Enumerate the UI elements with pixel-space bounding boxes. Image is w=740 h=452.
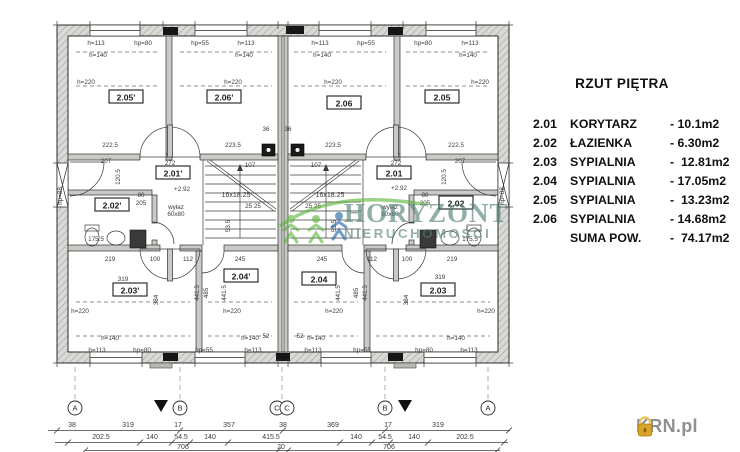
axis-label: B — [177, 404, 182, 413]
dim-label: 222.5 — [102, 142, 118, 149]
section-marker-left — [154, 400, 168, 412]
dim-label: 175.5 — [88, 236, 104, 243]
dim-label: hp=88 — [57, 187, 64, 205]
dim-label: 222.5 — [448, 142, 464, 149]
dim-label: 60x80 — [167, 211, 185, 218]
dim-label: 485 — [353, 287, 360, 298]
dim-label: 36 — [262, 126, 270, 133]
dim-label: h=220 — [324, 79, 342, 86]
dim-label: 112 — [367, 256, 378, 263]
dim-label: h=140 — [235, 52, 253, 59]
dim-label: h=113 — [237, 40, 255, 47]
dim-label: 140 — [204, 434, 216, 441]
dim-label: 485 — [203, 287, 210, 298]
agency-name-line2: NIERUCHOMOŚCI — [344, 226, 509, 241]
dim-label: 36 — [284, 126, 292, 133]
dim-label: +2.92 — [174, 186, 190, 193]
dim-label: +2.92 — [391, 185, 407, 192]
dim-label: 219 — [105, 256, 116, 263]
dim-label: 272 — [391, 160, 402, 167]
dim-label: hp=80 — [133, 347, 151, 354]
legend-row: 2.01 KORYTARZ - 10.1m2 — [533, 115, 729, 134]
dim-label: 16x18.25 — [222, 192, 251, 199]
dim-label: hp=80 — [415, 347, 433, 354]
dim-label: 384 — [153, 294, 160, 305]
dim-label: 54.5 — [174, 434, 188, 441]
legend: RZUT PIĘTRA 2.01 KORYTARZ - 10.1m2 2.02 … — [533, 76, 729, 248]
dim-label: 245 — [317, 256, 328, 263]
section-marker-right — [398, 400, 412, 412]
dim-label: 17 — [174, 422, 182, 429]
house-icon — [636, 416, 654, 437]
dim-label: 140 — [350, 434, 362, 441]
dim-label: h=220 — [325, 308, 343, 315]
dim-label: h=220 — [477, 308, 495, 315]
dim-label: 384 — [403, 294, 410, 305]
room-code: 2.01 — [533, 115, 570, 134]
dim-label: 112 — [183, 256, 194, 263]
dim-label: h=113 — [304, 347, 322, 354]
dim-label: 357 — [223, 422, 235, 429]
dim-label: 107 — [311, 162, 322, 169]
dim-label: 207 — [455, 158, 466, 165]
dim-label: h=220 — [71, 308, 89, 315]
dim-label: 52 — [296, 333, 304, 340]
dim-label: h=140 — [101, 335, 119, 342]
room-area: - 17.05m2 — [670, 172, 729, 191]
dim-label: h=140 — [307, 335, 325, 342]
dim-label: 205 — [136, 200, 147, 207]
room-name: SYPIALNIA — [570, 191, 670, 210]
room-name: SYPIALNIA — [570, 153, 670, 172]
dim-label: 441.5 — [221, 285, 228, 301]
dim-label: h=220 — [471, 79, 489, 86]
dim-label: 441.5 — [335, 285, 342, 301]
dim-label: 107 — [245, 162, 256, 169]
dim-label: 369 — [327, 422, 339, 429]
dim-label: 223.5 — [225, 142, 241, 149]
room-name: SYPIALNIA — [570, 172, 670, 191]
room-label: 2.06' — [215, 93, 234, 103]
room-name: SYPIALNIA — [570, 210, 670, 229]
dim-label: 319 — [432, 422, 444, 429]
agency-watermark: HORYZONT NIERUCHOMOŚCI — [278, 192, 548, 250]
dim-label: 54.5 — [378, 434, 392, 441]
dim-label: 140 — [146, 434, 158, 441]
dim-label: 223.5 — [325, 142, 341, 149]
room-code: 2.04 — [533, 172, 570, 191]
dim-label: hp=55 — [357, 40, 375, 47]
dim-label: 245 — [235, 256, 246, 263]
dim-label: wyłaz — [167, 204, 184, 211]
room-area: - 10.1m2 — [670, 115, 729, 134]
dim-label: h=113 — [244, 347, 262, 354]
dim-label: h=220 — [224, 79, 242, 86]
dim-label: 120.5 — [441, 169, 448, 185]
dim-label: 207 — [101, 158, 112, 165]
staircase-left — [205, 160, 276, 238]
room-name: KORYTARZ — [570, 115, 670, 134]
vent-shafts — [262, 144, 304, 156]
dim-label: 415.5 — [262, 434, 280, 441]
room-area: - 12.81m2 — [670, 153, 730, 172]
dim-label: 100 — [402, 256, 413, 263]
dim-label: 202.5 — [456, 434, 474, 441]
total-label: SUMA POW. — [570, 229, 670, 248]
legend-row: 2.05 SYPIALNIA - 13.23m2 — [533, 191, 729, 210]
dim-label: h=140 — [313, 52, 331, 59]
dim-label: h=220 — [223, 308, 241, 315]
dim-label: 319 — [118, 276, 129, 283]
legend-row: 2.04 SYPIALNIA - 17.05m2 — [533, 172, 729, 191]
agency-name: HORYZONT NIERUCHOMOŚCI — [344, 200, 509, 241]
dim-label: h=140 — [241, 335, 259, 342]
room-label: 2.06 — [336, 99, 353, 109]
krn-logo: KRN.pl — [636, 416, 698, 437]
dim-label: 319 — [122, 422, 134, 429]
axis-label: A — [72, 404, 77, 413]
dim-label: 80 — [137, 192, 145, 199]
legend-row: 2.02 ŁAZIENKA - 6.30m2 — [533, 134, 729, 153]
dim-label: 706 — [177, 444, 189, 451]
room-label: 2.02' — [103, 201, 122, 211]
axis-label: C — [284, 404, 290, 413]
legend-total: SUMA POW. - 74.17m2 — [533, 229, 729, 248]
dim-label: 140 — [408, 434, 420, 441]
axis-label: A — [485, 404, 490, 413]
dim-label: 272 — [165, 160, 176, 167]
legend-row: 2.03 SYPIALNIA - 12.81m2 — [533, 153, 729, 172]
agency-name-line1: HORYZONT — [344, 200, 509, 226]
room-code: 2.03 — [533, 153, 570, 172]
floorplan-page: ABCCBA 2.05'2.06'2.01'2.02'2.03'2.04'2.0… — [0, 0, 740, 452]
room-label: 2.03' — [121, 286, 140, 296]
dim-label: 441.5 — [362, 285, 369, 301]
dim-label: h=140 — [89, 52, 107, 59]
room-label: 2.01 — [386, 169, 403, 179]
dim-label: h=113 — [87, 40, 105, 47]
dim-label: 319 — [435, 274, 446, 281]
dim-label: 219 — [447, 256, 458, 263]
logo-figures — [284, 212, 346, 242]
room-label: 2.04' — [232, 272, 251, 282]
dim-label: 706 — [383, 444, 395, 451]
dim-label: 52 — [262, 333, 270, 340]
dim-label: h=220 — [77, 79, 95, 86]
room-label: 2.05' — [117, 93, 136, 103]
legend-row: 2.06 SYPIALNIA - 14.68m2 — [533, 210, 729, 229]
dim-label: 441.5 — [194, 285, 201, 301]
dim-label: hp=55 — [353, 347, 371, 354]
dim-label: 17 — [384, 422, 392, 429]
dim-label: hp=80 — [414, 40, 432, 47]
dim-label: hp=80 — [134, 40, 152, 47]
dim-label: h=113 — [311, 40, 329, 47]
room-name: ŁAZIENKA — [570, 134, 670, 153]
dim-label: hp=55 — [191, 40, 209, 47]
room-label: 2.03 — [430, 286, 447, 296]
dim-label: 53.5 — [225, 219, 232, 232]
dim-label: 25 25 — [245, 203, 261, 210]
dim-label: 120.5 — [115, 169, 122, 185]
dim-label: 38 — [279, 422, 287, 429]
dim-label: h=113 — [461, 40, 479, 47]
dim-label: h=113 — [460, 347, 478, 354]
axis-markers: ABCCBA — [68, 401, 495, 415]
room-area: - 13.23m2 — [670, 191, 730, 210]
dim-label: 38 — [68, 422, 76, 429]
room-label: 2.05 — [434, 93, 451, 103]
room-code: 2.02 — [533, 134, 570, 153]
axis-label: C — [274, 404, 280, 413]
dim-label: h=140 — [459, 52, 477, 59]
room-label: 2.01' — [164, 169, 183, 179]
dim-label: h=113 — [88, 347, 106, 354]
dim-label: 20 — [277, 444, 285, 451]
room-label: 2.04 — [311, 275, 328, 285]
room-area: - 14.68m2 — [670, 210, 729, 229]
legend-title: RZUT PIĘTRA — [543, 76, 701, 91]
room-area: - 6.30m2 — [670, 134, 729, 153]
dim-label: 202.5 — [92, 434, 110, 441]
dim-label: h=140 — [447, 335, 465, 342]
dim-label: 100 — [150, 256, 161, 263]
axis-label: B — [382, 404, 387, 413]
total-area: - 74.17m2 — [670, 229, 730, 248]
dim-label: hp=55 — [195, 347, 213, 354]
